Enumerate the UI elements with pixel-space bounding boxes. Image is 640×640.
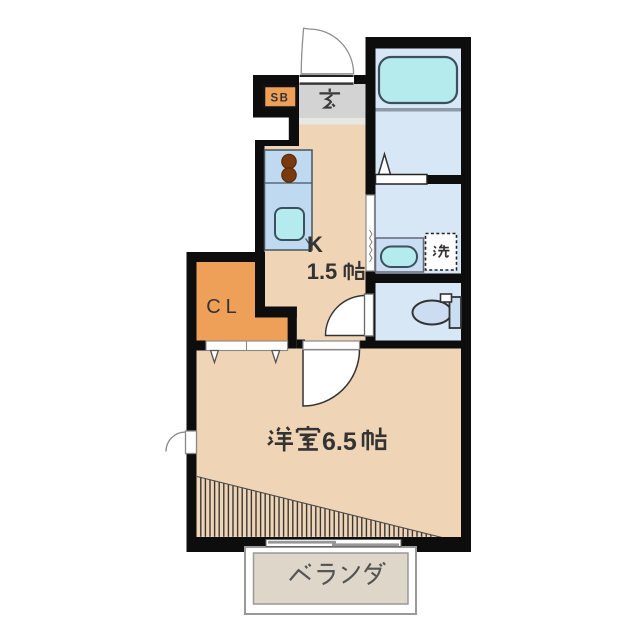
svg-text:6.5: 6.5 xyxy=(322,428,357,456)
svg-text:CL: CL xyxy=(206,296,242,318)
svg-text:1.5: 1.5 xyxy=(307,259,338,284)
svg-text:SB: SB xyxy=(271,93,290,105)
svg-text:K: K xyxy=(307,232,323,257)
